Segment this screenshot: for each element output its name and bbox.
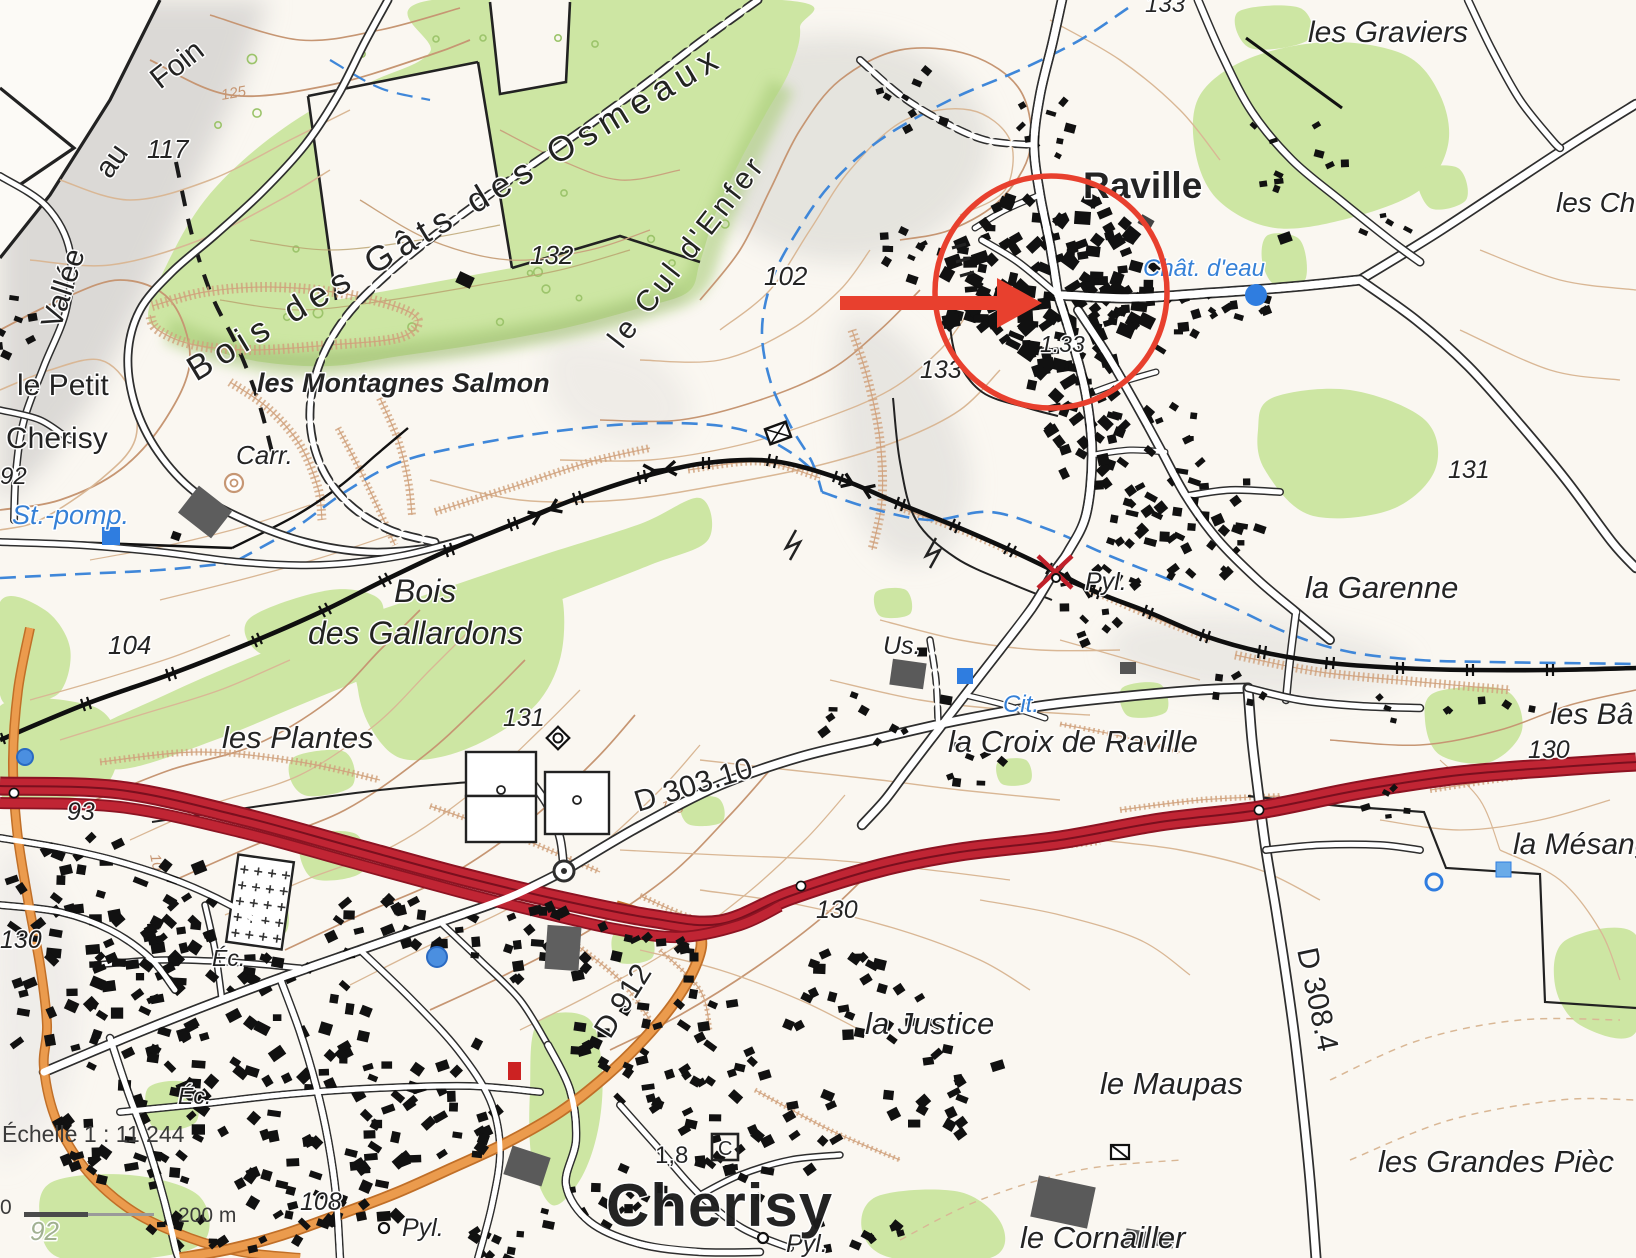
svg-text:Éc.: Éc. [212, 945, 245, 971]
svg-text:les Ch: les Ch [1556, 187, 1635, 218]
svg-text:Carr.: Carr. [236, 440, 293, 470]
svg-text:les Grandes Pièc: les Grandes Pièc [1378, 1144, 1615, 1179]
svg-text:130: 130 [1528, 736, 1570, 764]
svg-text:des Gallardons: des Gallardons [308, 615, 523, 651]
svg-text:la Justice: la Justice [865, 1006, 994, 1041]
svg-text:130: 130 [0, 926, 42, 954]
svg-text:les Graviers: les Graviers [1308, 16, 1468, 49]
svg-text:Us.: Us. [883, 632, 921, 660]
svg-text:92: 92 [30, 1216, 59, 1246]
svg-text:130: 130 [816, 896, 858, 924]
svg-text:132: 132 [530, 240, 574, 270]
svg-text:C: C [718, 1138, 732, 1160]
svg-text:la Mésang: la Mésang [1513, 828, 1636, 861]
svg-text:Cherisy: Cherisy [6, 422, 108, 455]
svg-text:les Bâ: les Bâ [1550, 698, 1633, 731]
svg-text:0: 0 [0, 1196, 12, 1219]
svg-text:Bois: Bois [394, 573, 456, 609]
svg-text:Cherisy: Cherisy [606, 1172, 833, 1239]
svg-text:la Garenne: la Garenne [1305, 570, 1458, 605]
svg-text:Éc.: Éc. [178, 1083, 211, 1109]
svg-text:Pyl.: Pyl. [402, 1214, 444, 1242]
svg-text:les Plantes: les Plantes [222, 720, 374, 755]
svg-text:108: 108 [300, 1188, 342, 1216]
svg-text:Échelle 1 : 11 244: Échelle 1 : 11 244 [2, 1121, 185, 1147]
svg-text:104: 104 [108, 630, 151, 660]
svg-text:133: 133 [1145, 0, 1186, 18]
svg-text:131: 131 [503, 704, 545, 732]
svg-text:les Montagnes Salmon: les Montagnes Salmon [257, 368, 550, 398]
svg-text:131: 131 [1448, 456, 1490, 484]
svg-text:93: 93 [67, 798, 95, 826]
svg-text:St.-pomp.: St.-pomp. [12, 500, 129, 530]
svg-text:Pyl.: Pyl. [1085, 568, 1127, 596]
svg-text:200 m: 200 m [178, 1204, 236, 1227]
svg-text:117: 117 [147, 134, 190, 164]
svg-text:la Croix de Raville: la Croix de Raville [948, 724, 1198, 759]
svg-text:le Maupas: le Maupas [1100, 1066, 1243, 1101]
svg-text:1,8: 1,8 [655, 1142, 688, 1169]
svg-text:le Petit: le Petit [17, 369, 109, 402]
svg-text:Cit.: Cit. [1003, 691, 1039, 718]
svg-text:1.33: 1.33 [1040, 331, 1085, 357]
svg-text:92: 92 [0, 463, 27, 490]
svg-text:le Cornailler: le Cornailler [1020, 1220, 1187, 1255]
svg-text:102: 102 [764, 261, 808, 291]
